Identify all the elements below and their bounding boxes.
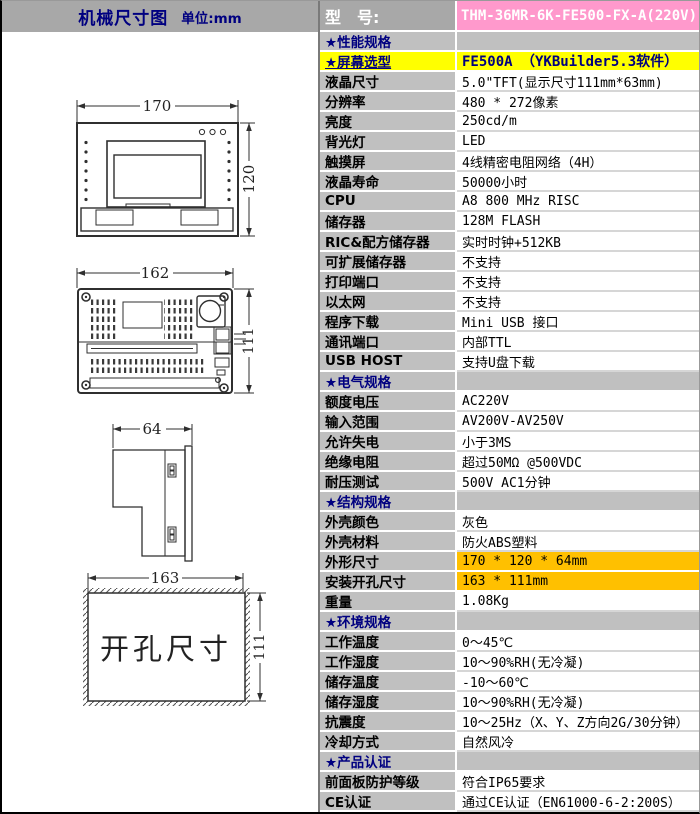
spec-row: 抗震度10～25Hz（X、Y、Z方向2G/30分钟） — [320, 712, 699, 732]
spec-row: 触摸屏4线精密电阻网络（4H） — [320, 152, 699, 172]
spec-row: 工作湿度10～90%RH(无冷凝) — [320, 652, 699, 672]
spec-value: 0～45℃ — [457, 632, 699, 652]
drawing-unit-label: 单位:mm — [181, 7, 242, 27]
drawing-panel-title: 机械尺寸图 — [78, 4, 168, 29]
spec-sheet: 机械尺寸图 单位:mm — [0, 0, 700, 814]
model-number: THM-36MR-6K-FE500-FX-A(220V) — [457, 1, 699, 32]
spec-value — [457, 372, 699, 392]
spec-value: 4线精密电阻网络（4H） — [457, 152, 699, 172]
spec-label: 工作湿度 — [320, 652, 457, 672]
spec-row: USB HOST支持U盘下载 — [320, 352, 699, 372]
spec-label: 以太网 — [320, 292, 457, 312]
spec-label: 通讯端口 — [320, 332, 457, 352]
spec-label: 储存温度 — [320, 672, 457, 692]
mechanical-drawing-panel: 机械尺寸图 单位:mm — [2, 1, 318, 812]
section-label: ★环境规格 — [320, 612, 457, 632]
spec-label: 打印端口 — [320, 272, 457, 292]
spec-label: 程序下载 — [320, 312, 457, 332]
side-view-drawing — [113, 421, 192, 561]
rear-view-drawing — [77, 265, 255, 393]
spec-value: 防火ABS塑料 — [457, 532, 699, 552]
drawing-area: 170 120 — [2, 32, 318, 814]
spec-label: 安装开孔尺寸 — [320, 572, 457, 592]
spec-value: 不支持 — [457, 252, 699, 272]
spec-row: 通讯端口内部TTL — [320, 332, 699, 352]
section-label: ★性能规格 — [320, 32, 457, 52]
spec-value: -10～60℃ — [457, 672, 699, 692]
spec-label: 外壳材料 — [320, 532, 457, 552]
spec-value: 不支持 — [457, 272, 699, 292]
model-row: 型 号: THM-36MR-6K-FE500-FX-A(220V) — [320, 1, 699, 32]
spec-row: 绝缘电阻超过50MΩ @500VDC — [320, 452, 699, 472]
spec-label: 抗震度 — [320, 712, 457, 732]
section-row: ★结构规格 — [320, 492, 699, 512]
spec-value — [457, 32, 699, 52]
section-label: ★结构规格 — [320, 492, 457, 512]
spec-label: 额度电压 — [320, 392, 457, 412]
spec-label: 分辨率 — [320, 92, 457, 112]
spec-table: ★性能规格★屏幕选型FE500A （YKBuilder5.3软件）液晶尺寸5.0… — [320, 32, 699, 812]
spec-value: 50000小时 — [457, 172, 699, 192]
spec-row: 工作温度0～45℃ — [320, 632, 699, 652]
rear-width-dim: 162 — [141, 264, 170, 282]
section-row: ★性能规格 — [320, 32, 699, 52]
spec-value: 5.0"TFT(显示尺寸111mm*63mm) — [457, 72, 699, 92]
section-label: ★电气规格 — [320, 372, 457, 392]
spec-row: 允许失电小于3MS — [320, 432, 699, 452]
spec-value — [457, 612, 699, 632]
spec-label: 耐压测试 — [320, 472, 457, 492]
spec-label: 输入范围 — [320, 412, 457, 432]
spec-value: 通过CE认证（EN61000-6-2:200S） — [457, 792, 699, 812]
spec-row: ★屏幕选型FE500A （YKBuilder5.3软件） — [320, 52, 699, 72]
spec-label: 外形尺寸 — [320, 552, 457, 572]
spec-label: 工作温度 — [320, 632, 457, 652]
spec-row: 亮度250cd/m — [320, 112, 699, 132]
spec-value: 实时时钟+512KB — [457, 232, 699, 252]
spec-value: 163 * 111mm — [457, 572, 699, 592]
spec-value: 480 * 272像素 — [457, 92, 699, 112]
spec-label: 前面板防护等级 — [320, 772, 457, 792]
spec-label: CE认证 — [320, 792, 457, 812]
section-label: ★产品认证 — [320, 752, 457, 772]
spec-value: 小于3MS — [457, 432, 699, 452]
cutout-height-dim: 111 — [252, 634, 268, 661]
spec-row: 打印端口不支持 — [320, 272, 699, 292]
spec-row: CE认证通过CE认证（EN61000-6-2:200S） — [320, 792, 699, 812]
spec-value: 超过50MΩ @500VDC — [457, 452, 699, 472]
drawing-panel-header: 机械尺寸图 单位:mm — [2, 1, 318, 32]
section-row: ★电气规格 — [320, 372, 699, 392]
cutout-label: 开孔尺寸 — [100, 632, 232, 666]
spec-value: 128M FLASH — [457, 212, 699, 232]
spec-label: 重量 — [320, 592, 457, 612]
spec-label: 绝缘电阻 — [320, 452, 457, 472]
spec-row: 外形尺寸170 * 120 * 64mm — [320, 552, 699, 572]
section-row: ★产品认证 — [320, 752, 699, 772]
spec-label: RIC&配方储存器 — [320, 232, 457, 252]
spec-value: 500V AC1分钟 — [457, 472, 699, 492]
spec-label: 冷却方式 — [320, 732, 457, 752]
spec-label: USB HOST — [320, 352, 457, 372]
spec-row: 储存温度-10～60℃ — [320, 672, 699, 692]
spec-label: 液晶寿命 — [320, 172, 457, 192]
spec-row: 储存湿度10～90%RH(无冷凝) — [320, 692, 699, 712]
front-width-dim: 170 — [143, 97, 172, 115]
spec-value: 内部TTL — [457, 332, 699, 352]
spec-value: 10～90%RH(无冷凝) — [457, 652, 699, 672]
spec-value: 10～90%RH(无冷凝) — [457, 692, 699, 712]
spec-row: 额度电压AC220V — [320, 392, 699, 412]
spec-value: Mini USB 接口 — [457, 312, 699, 332]
spec-value: AV200V-AV250V — [457, 412, 699, 432]
spec-value: A8 800 MHz RISC — [457, 192, 699, 212]
rear-height-dim: 111 — [241, 328, 257, 355]
spec-value: LED — [457, 132, 699, 152]
spec-row: 重量1.08Kg — [320, 592, 699, 612]
spec-row: 以太网不支持 — [320, 292, 699, 312]
spec-table-panel: 型 号: THM-36MR-6K-FE500-FX-A(220V) ★性能规格★… — [318, 1, 699, 812]
model-label: 型 号: — [320, 1, 457, 32]
spec-value: 1.08Kg — [457, 592, 699, 612]
spec-row: 耐压测试500V AC1分钟 — [320, 472, 699, 492]
spec-value: AC220V — [457, 392, 699, 412]
spec-label: 液晶尺寸 — [320, 72, 457, 92]
spec-label[interactable]: ★屏幕选型 — [320, 52, 457, 72]
spec-row: 储存器128M FLASH — [320, 212, 699, 232]
spec-row: RIC&配方储存器实时时钟+512KB — [320, 232, 699, 252]
spec-value — [457, 752, 699, 772]
front-view-drawing — [77, 98, 255, 236]
spec-label: CPU — [320, 192, 457, 212]
spec-value: 灰色 — [457, 512, 699, 532]
spec-row: 外壳材料防火ABS塑料 — [320, 532, 699, 552]
side-width-dim: 64 — [142, 420, 161, 438]
spec-value: 自然风冷 — [457, 732, 699, 752]
spec-label: 亮度 — [320, 112, 457, 132]
spec-row: CPUA8 800 MHz RISC — [320, 192, 699, 212]
spec-row: 冷却方式自然风冷 — [320, 732, 699, 752]
spec-row: 前面板防护等级符合IP65要求 — [320, 772, 699, 792]
spec-row: 可扩展储存器不支持 — [320, 252, 699, 272]
spec-row: 输入范围AV200V-AV250V — [320, 412, 699, 432]
spec-value: 170 * 120 * 64mm — [457, 552, 699, 572]
cutout-width-dim: 163 — [151, 569, 180, 587]
front-height-dim: 120 — [240, 165, 258, 194]
spec-label: 可扩展储存器 — [320, 252, 457, 272]
spec-row: 外壳颜色灰色 — [320, 512, 699, 532]
spec-label: 背光灯 — [320, 132, 457, 152]
spec-value: 支持U盘下载 — [457, 352, 699, 372]
spec-label: 触摸屏 — [320, 152, 457, 172]
dimension-drawings: 170 120 — [2, 32, 316, 813]
spec-value: 10～25Hz（X、Y、Z方向2G/30分钟） — [457, 712, 699, 732]
spec-value — [457, 492, 699, 512]
section-row: ★环境规格 — [320, 612, 699, 632]
spec-label: 储存湿度 — [320, 692, 457, 712]
spec-row: 液晶寿命50000小时 — [320, 172, 699, 192]
spec-value: 符合IP65要求 — [457, 772, 699, 792]
spec-value: FE500A （YKBuilder5.3软件） — [457, 52, 699, 72]
spec-row: 程序下载Mini USB 接口 — [320, 312, 699, 332]
spec-value: 不支持 — [457, 292, 699, 312]
spec-row: 背光灯LED — [320, 132, 699, 152]
spec-row: 液晶尺寸5.0"TFT(显示尺寸111mm*63mm) — [320, 72, 699, 92]
spec-row: 分辨率480 * 272像素 — [320, 92, 699, 112]
spec-label: 储存器 — [320, 212, 457, 232]
spec-label: 外壳颜色 — [320, 512, 457, 532]
spec-row: 安装开孔尺寸163 * 111mm — [320, 572, 699, 592]
spec-label: 允许失电 — [320, 432, 457, 452]
spec-value: 250cd/m — [457, 112, 699, 132]
